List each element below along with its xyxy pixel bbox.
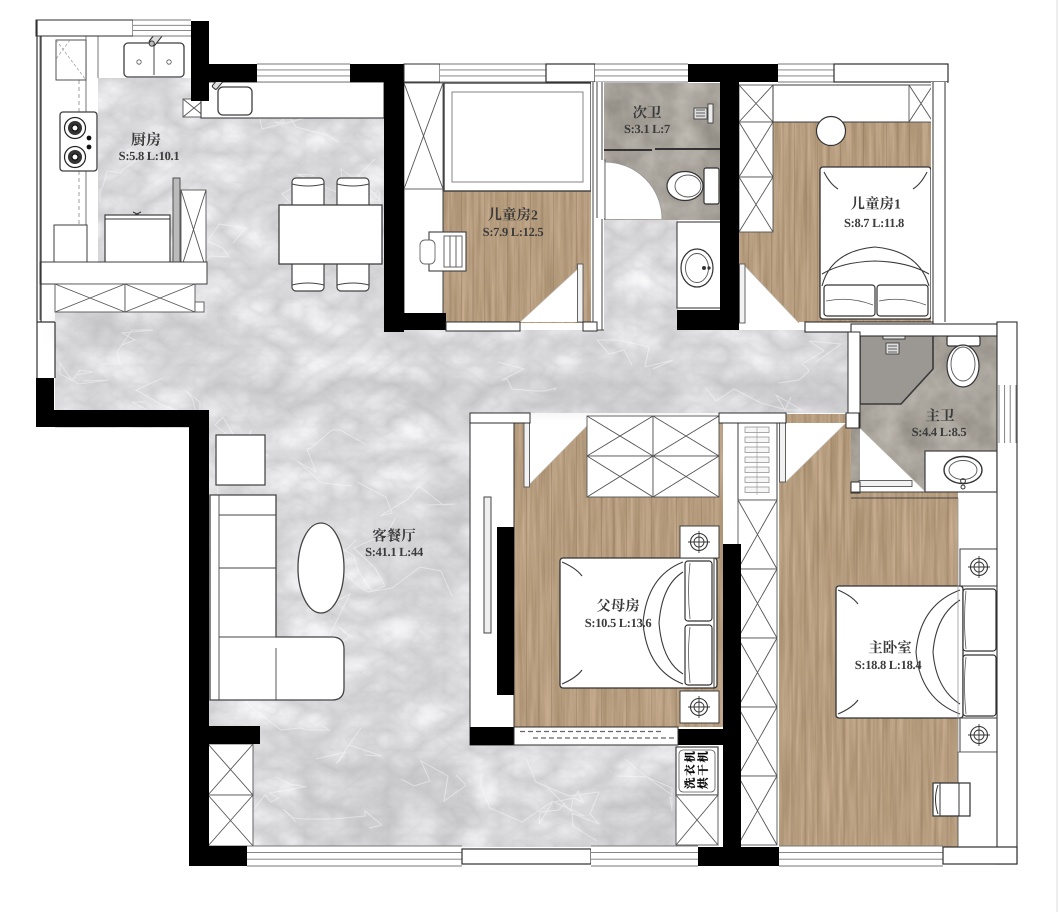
svg-text:S:7.9 L:12.5: S:7.9 L:12.5 [483,225,544,239]
svg-text:S:3.1 L:7: S:3.1 L:7 [624,122,670,136]
svg-text:S:4.4 L:8.5: S:4.4 L:8.5 [912,425,967,439]
svg-text:S:5.8 L:10.1: S:5.8 L:10.1 [119,149,180,163]
svg-text:2: 2 [531,208,538,223]
svg-text:1: 1 [894,197,901,212]
svg-text:S:41.1 L:44: S:41.1 L:44 [365,545,424,559]
svg-text:S:18.8 L:18.4: S:18.8 L:18.4 [855,658,923,672]
svg-text:S:8.7 L:11.8: S:8.7 L:11.8 [844,216,904,230]
svg-text:S:10.5 L:13.6: S:10.5 L:13.6 [585,616,652,630]
